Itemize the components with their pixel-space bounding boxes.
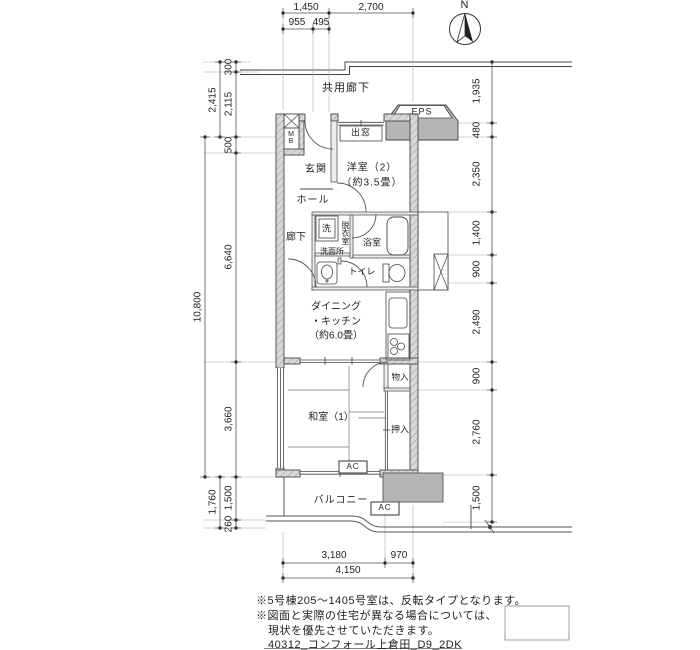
dim-right-900a: 900: [472, 261, 483, 278]
dim-right-1935: 1,935: [472, 78, 483, 103]
north-arrow-icon: [450, 13, 481, 45]
west-window: [276, 368, 284, 468]
dim-top-1: 1,450: [293, 1, 318, 16]
stamp-box: [505, 606, 569, 640]
dim-left-6640: 6,640: [224, 244, 235, 269]
room-label-closet: 押入: [391, 423, 409, 436]
dim-right-2490: 2,490: [472, 309, 483, 334]
dim-bottom-970: 970: [391, 549, 408, 564]
room-label-washroom: 洗面所: [320, 246, 344, 258]
room-label-dressing-room: 脱衣室: [341, 221, 349, 245]
dim-left-1760: 1,760: [208, 489, 219, 514]
dim-right-2760: 2,760: [472, 419, 483, 444]
note-line-2: ※図面と実際の住宅が異なる場合については、: [256, 607, 497, 623]
dim-left-2415: 2,415: [208, 87, 219, 112]
dim-right-1400: 1,400: [472, 220, 483, 245]
ac-label-balcony: AC: [378, 502, 391, 514]
room-label-entrance: 玄関: [305, 163, 327, 178]
room-label-western-room2: 洋室（2） （約3.5畳）: [342, 162, 403, 191]
room-label-washer: 洗: [322, 222, 332, 235]
dim-top-sub-2: 495: [313, 16, 330, 31]
ac-label-room: AC: [346, 461, 359, 473]
dim-left-2115: 2,115: [224, 92, 235, 116]
room-label-toilet: トイレ: [348, 265, 375, 278]
room-label-storage: 物入: [391, 371, 408, 383]
toilet-icon: [383, 264, 405, 282]
room-label-balcony: バルコニー: [314, 494, 369, 509]
common-corridor-lines: [240, 62, 572, 75]
washbasin-icon: [317, 262, 337, 284]
room-label-corridor: 廊下: [286, 231, 306, 246]
meter-box-icon: [284, 114, 299, 128]
room-label-dining-kitchen: ダイニング ・キッチン （約6.0畳）: [309, 300, 363, 344]
dim-left-10800: 10,800: [193, 292, 204, 323]
dim-left-260: 260: [224, 516, 235, 533]
note-line-1: ※5号棟205～1405号室は、反転タイプとなります。: [256, 592, 526, 608]
dim-left-500: 500: [224, 137, 235, 154]
room-label-hall: ホール: [297, 194, 330, 209]
bathtub-icon: [387, 217, 408, 255]
dim-right-2350: 2,350: [472, 161, 483, 186]
balcony-shaded-block: [383, 473, 443, 502]
dim-right-480: 480: [472, 122, 483, 139]
balcony-structure: [266, 473, 572, 533]
room-label-japanese-room: 和室（1）: [308, 411, 354, 426]
dim-left-300: 300: [224, 59, 235, 76]
footer-plan-id: 40312_コンフォール上倉田_D9_2DK: [268, 636, 462, 650]
dim-top-2: 2,700: [358, 1, 383, 16]
room-label-meter-box: MB: [288, 131, 295, 145]
room-label-bay-window: 出窓: [351, 126, 371, 139]
room-label-common-corridor: 共用廊下: [322, 81, 370, 97]
floorplan-page: N 1,450 2,700 955 495 300 2,115 500 6,64…: [0, 0, 700, 650]
pipe-space: [418, 212, 448, 290]
north-label: N: [461, 0, 470, 14]
room-label-eps: EPS: [411, 105, 432, 118]
dim-right-900b: 900: [472, 368, 483, 385]
kitchen-counter: [386, 292, 410, 360]
dim-left-1500: 1,500: [224, 485, 235, 510]
dim-top-sub-1: 955: [289, 16, 306, 31]
dim-bottom-4150: 4,150: [335, 564, 360, 579]
dim-right-1500: 1,500: [472, 485, 483, 510]
dim-bottom-3180: 3,180: [321, 549, 346, 564]
dim-left-3660: 3,660: [224, 406, 235, 431]
room-label-bathroom: 浴室: [363, 236, 381, 249]
